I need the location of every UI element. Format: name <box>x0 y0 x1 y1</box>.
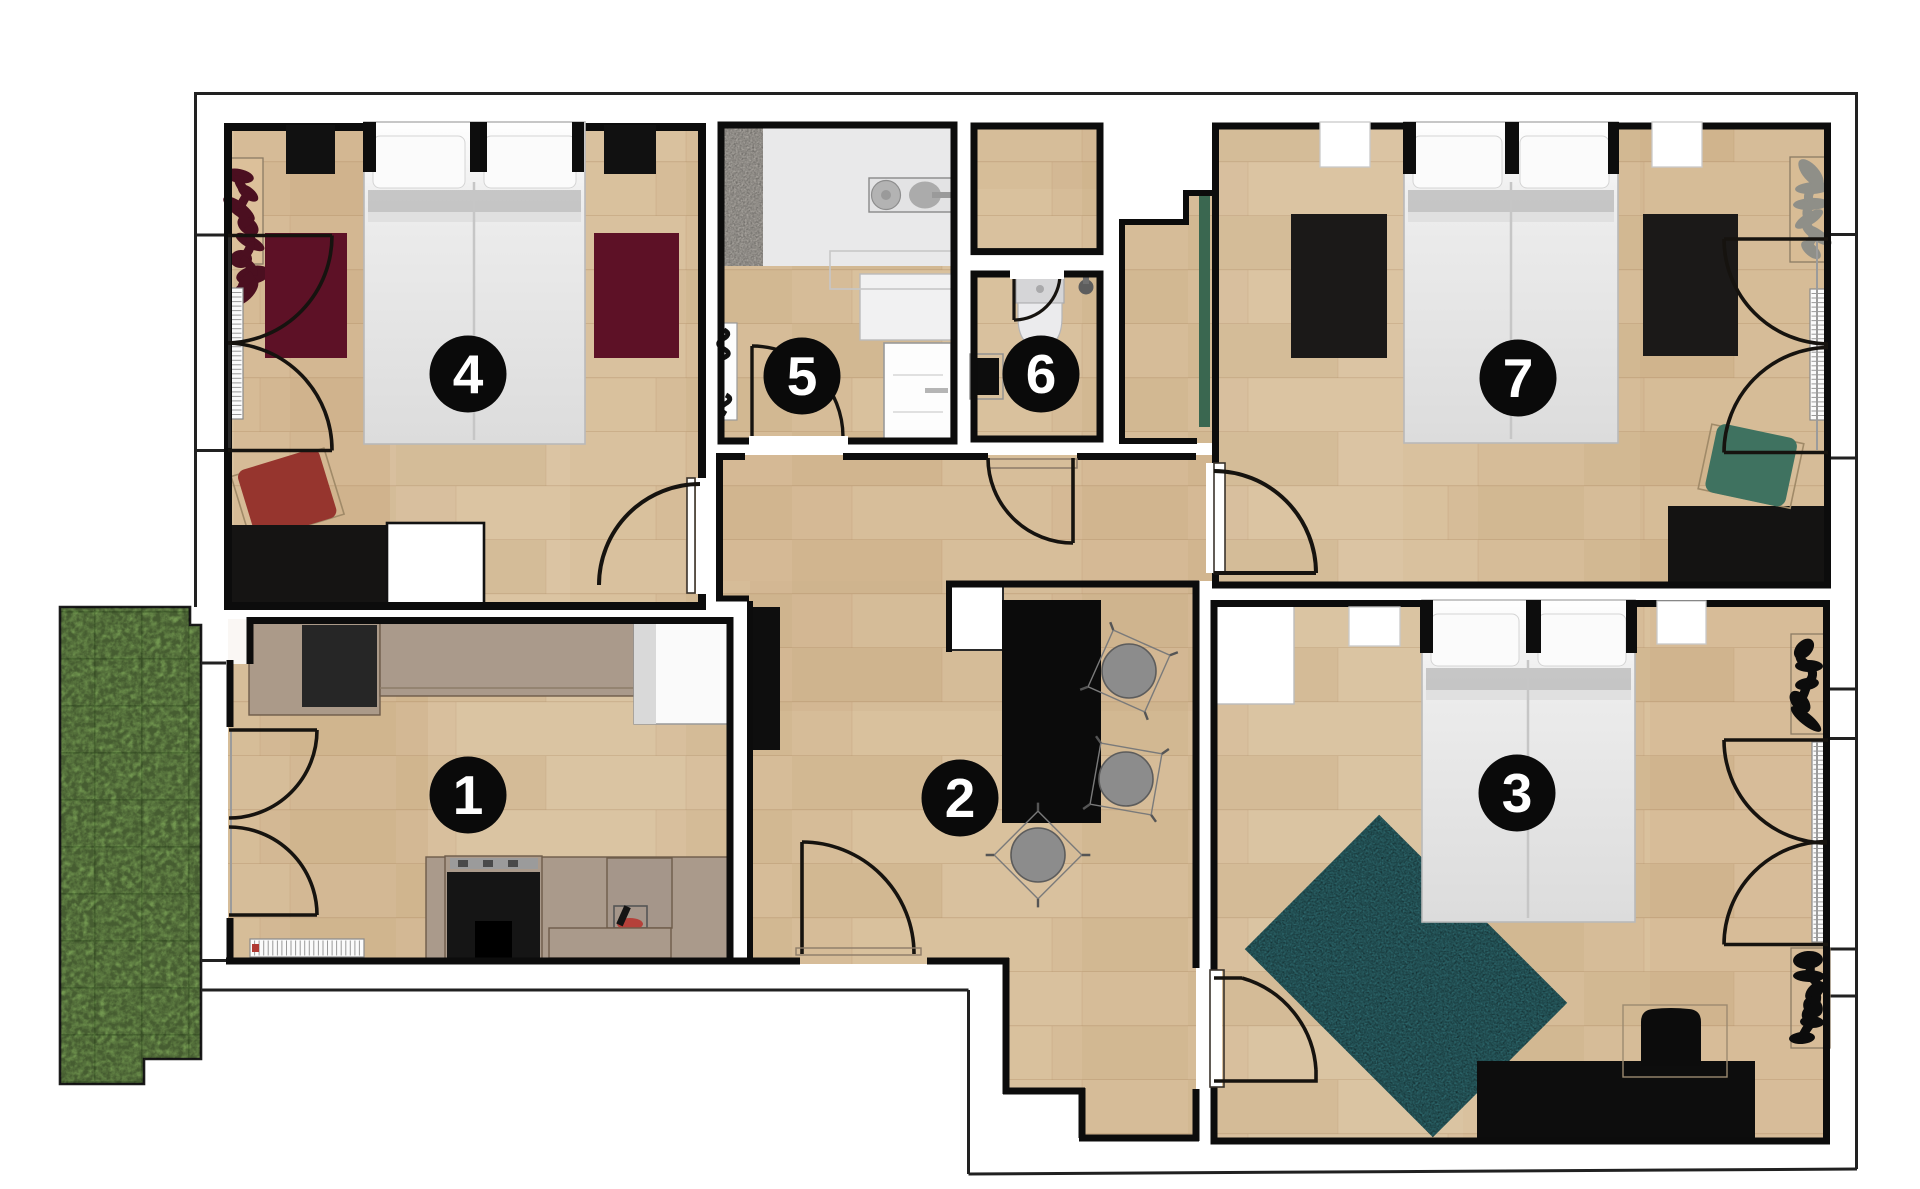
svg-text:2: 2 <box>945 767 976 829</box>
svg-text:5: 5 <box>787 345 818 407</box>
svg-text:6: 6 <box>1026 343 1057 405</box>
svg-text:7: 7 <box>1503 347 1534 409</box>
svg-text:3: 3 <box>1502 762 1533 824</box>
svg-text:1: 1 <box>453 764 484 826</box>
svg-text:4: 4 <box>453 343 484 405</box>
